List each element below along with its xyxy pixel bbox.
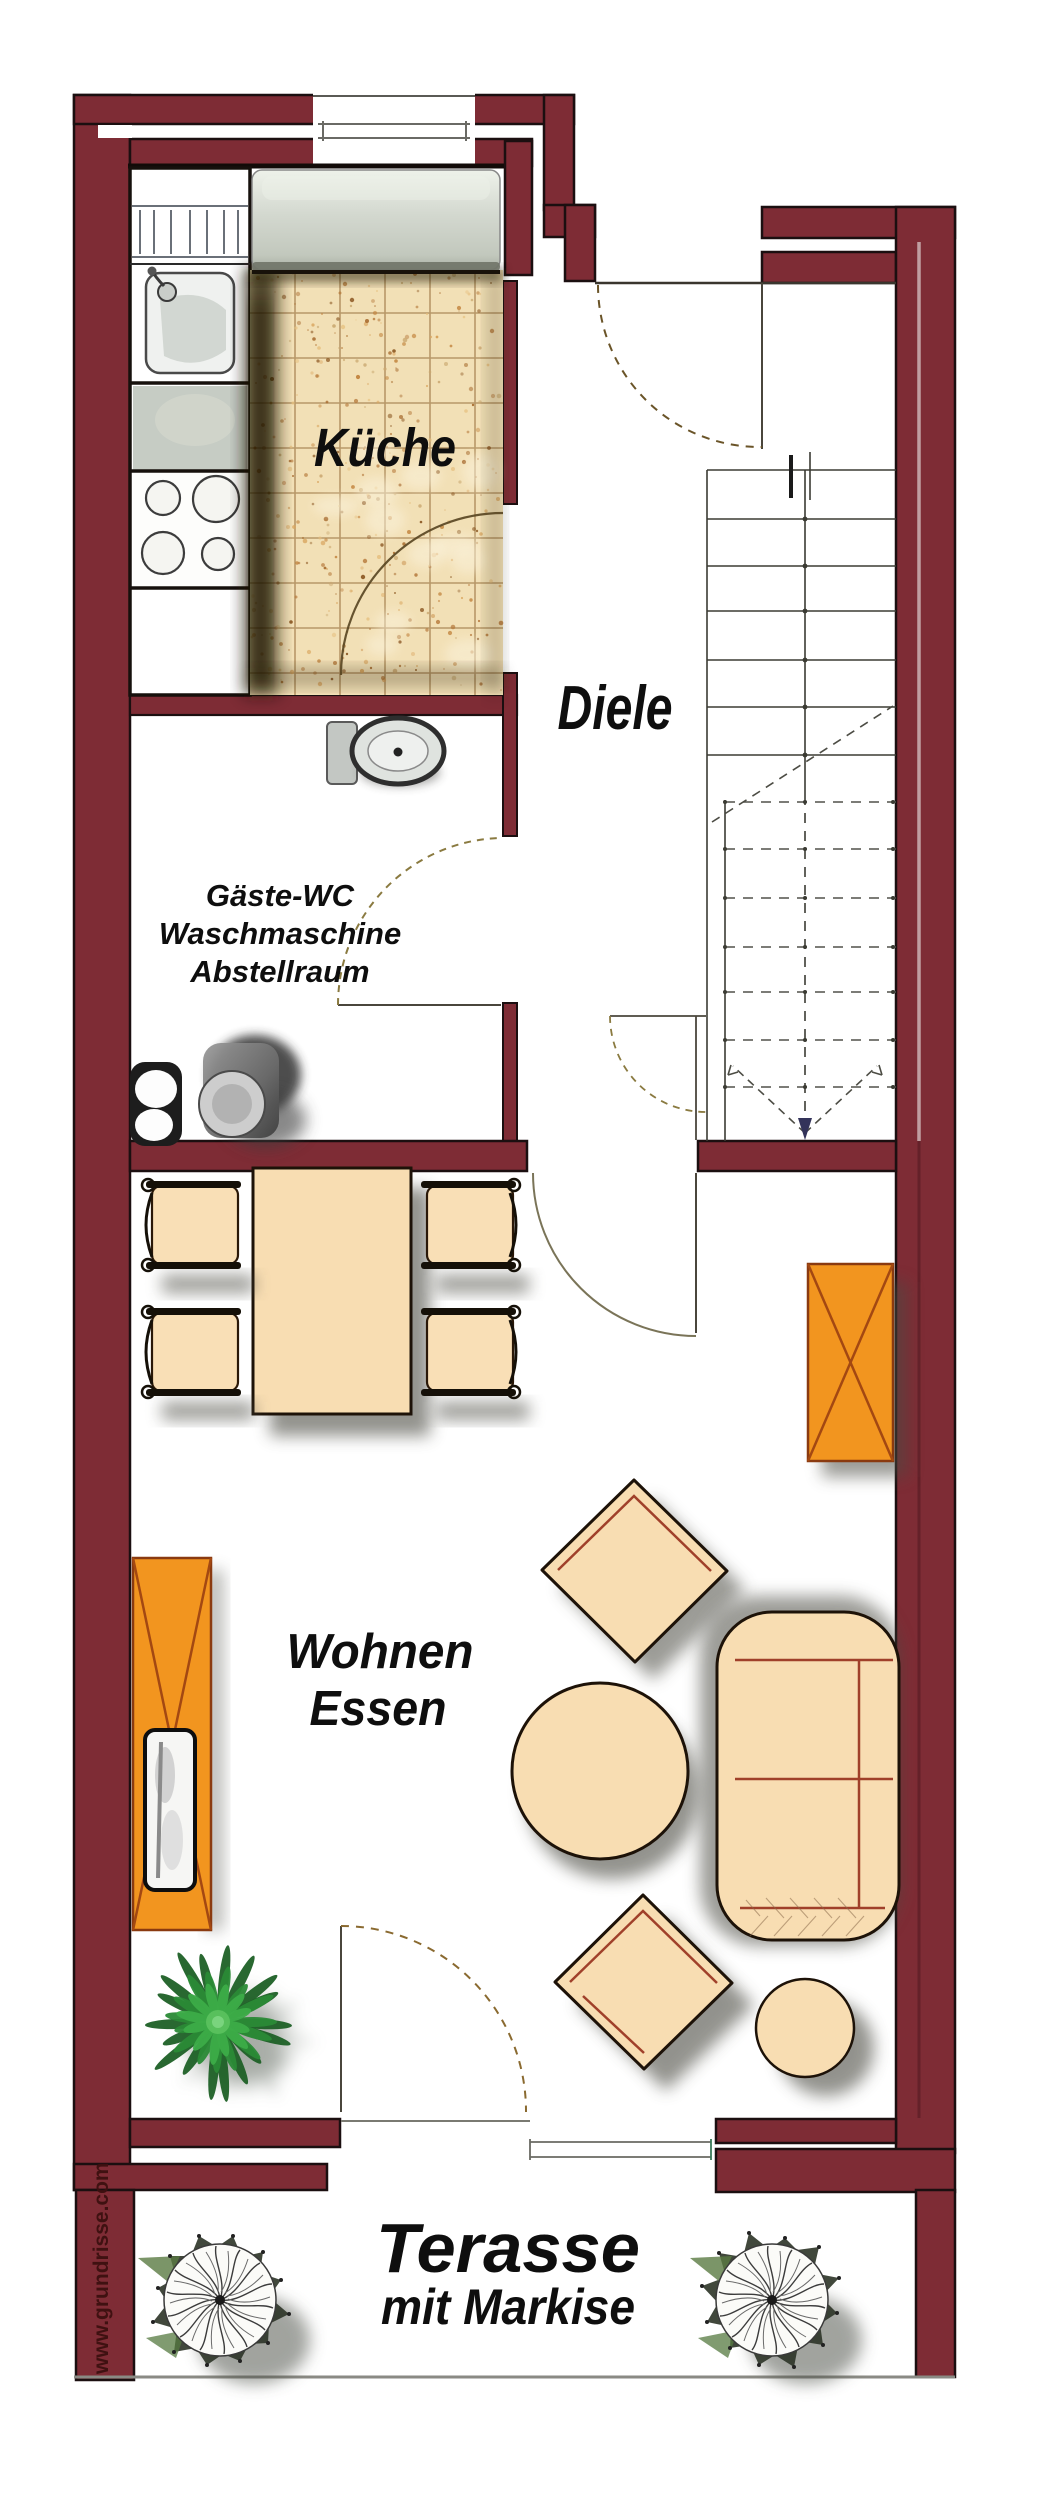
svg-text:Gäste-WC: Gäste-WC — [206, 878, 355, 913]
svg-text:mit Markise: mit Markise — [381, 2279, 635, 2335]
svg-text:Terasse: Terasse — [376, 2209, 640, 2287]
svg-text:Essen: Essen — [310, 1682, 447, 1736]
svg-text:www.grundrisse.com: www.grundrisse.com — [90, 2162, 113, 2375]
svg-text:Abstellraum: Abstellraum — [189, 954, 369, 989]
svg-text:Wohnen: Wohnen — [287, 1625, 474, 1679]
svg-text:Diele: Diele — [558, 674, 673, 743]
svg-text:Waschmaschine: Waschmaschine — [159, 916, 401, 951]
svg-text:Küche: Küche — [314, 418, 456, 478]
